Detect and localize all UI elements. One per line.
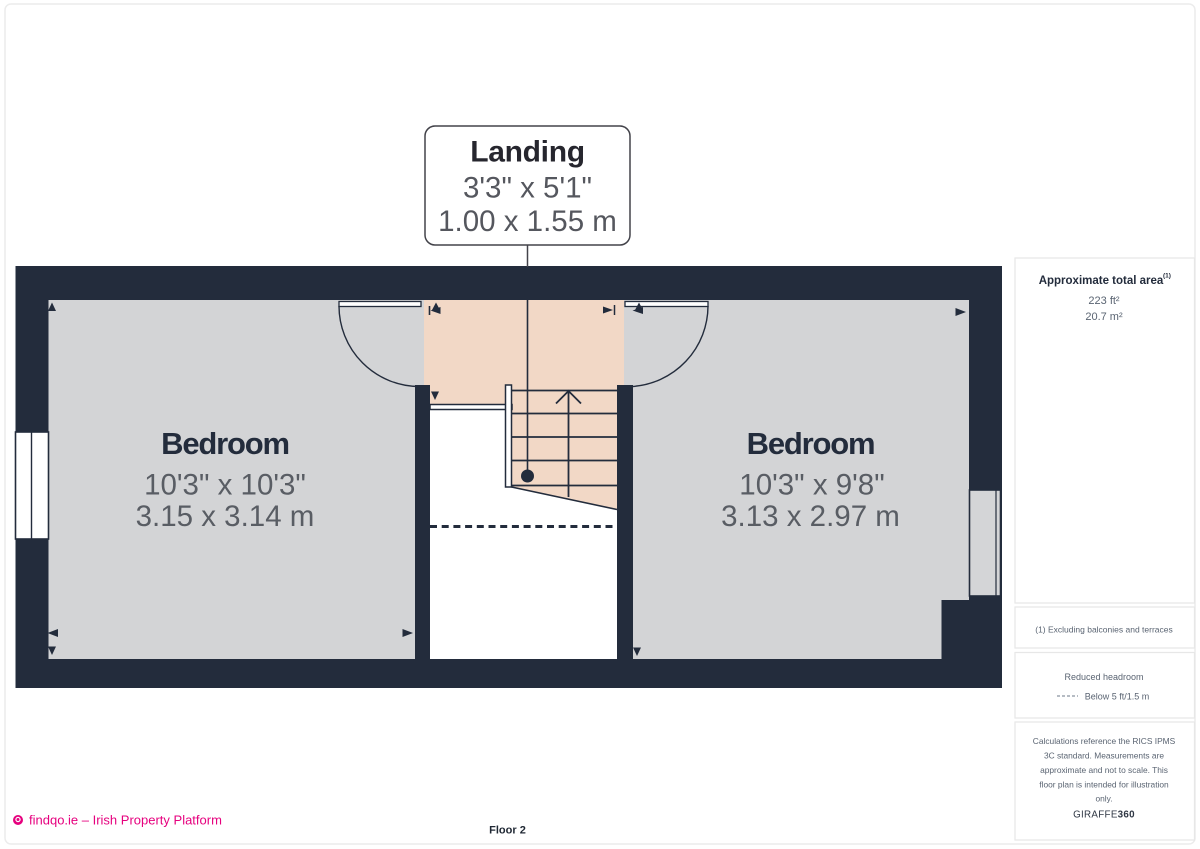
svg-text:Reduced headroom: Reduced headroom (1064, 672, 1143, 682)
svg-text:floor plan is intended for ill: floor plan is intended for illustration (1039, 780, 1169, 790)
svg-text:20.7 m²: 20.7 m² (1085, 311, 1123, 323)
svg-text:3C standard. Measurements are: 3C standard. Measurements are (1044, 751, 1164, 761)
svg-text:(1) Excluding balconies and te: (1) Excluding balconies and terraces (1035, 625, 1173, 635)
svg-text:10'3" x 9'8": 10'3" x 9'8" (739, 469, 884, 502)
svg-text:3'3" x 5'1": 3'3" x 5'1" (463, 172, 592, 205)
svg-text:Approximate total area: Approximate total area (1039, 275, 1164, 287)
svg-text:3.13 x 2.97 m: 3.13 x 2.97 m (721, 500, 900, 533)
svg-text:Landing: Landing (470, 136, 585, 169)
svg-text:1.00 x 1.55 m: 1.00 x 1.55 m (438, 205, 617, 238)
svg-text:Floor 2: Floor 2 (489, 825, 526, 837)
svg-text:10'3" x 10'3": 10'3" x 10'3" (144, 469, 306, 502)
svg-text:223 ft²: 223 ft² (1088, 295, 1120, 307)
svg-text:3.15 x 3.14 m: 3.15 x 3.14 m (136, 500, 315, 533)
svg-text:GIRAFFE360: GIRAFFE360 (1073, 810, 1135, 821)
svg-text:only.: only. (1095, 794, 1112, 804)
svg-text:approximate and not to scale.: approximate and not to scale. This (1040, 765, 1168, 775)
svg-text:Bedroom: Bedroom (747, 426, 875, 461)
svg-text:Below 5 ft/1.5 m: Below 5 ft/1.5 m (1085, 692, 1150, 702)
svg-text:findqo.ie – Irish Property Pla: findqo.ie – Irish Property Platform (29, 813, 222, 828)
svg-text:Calculations reference the RIC: Calculations reference the RICS IPMS (1033, 736, 1176, 746)
svg-text:Bedroom: Bedroom (161, 426, 289, 461)
svg-text:(1): (1) (1163, 273, 1171, 280)
